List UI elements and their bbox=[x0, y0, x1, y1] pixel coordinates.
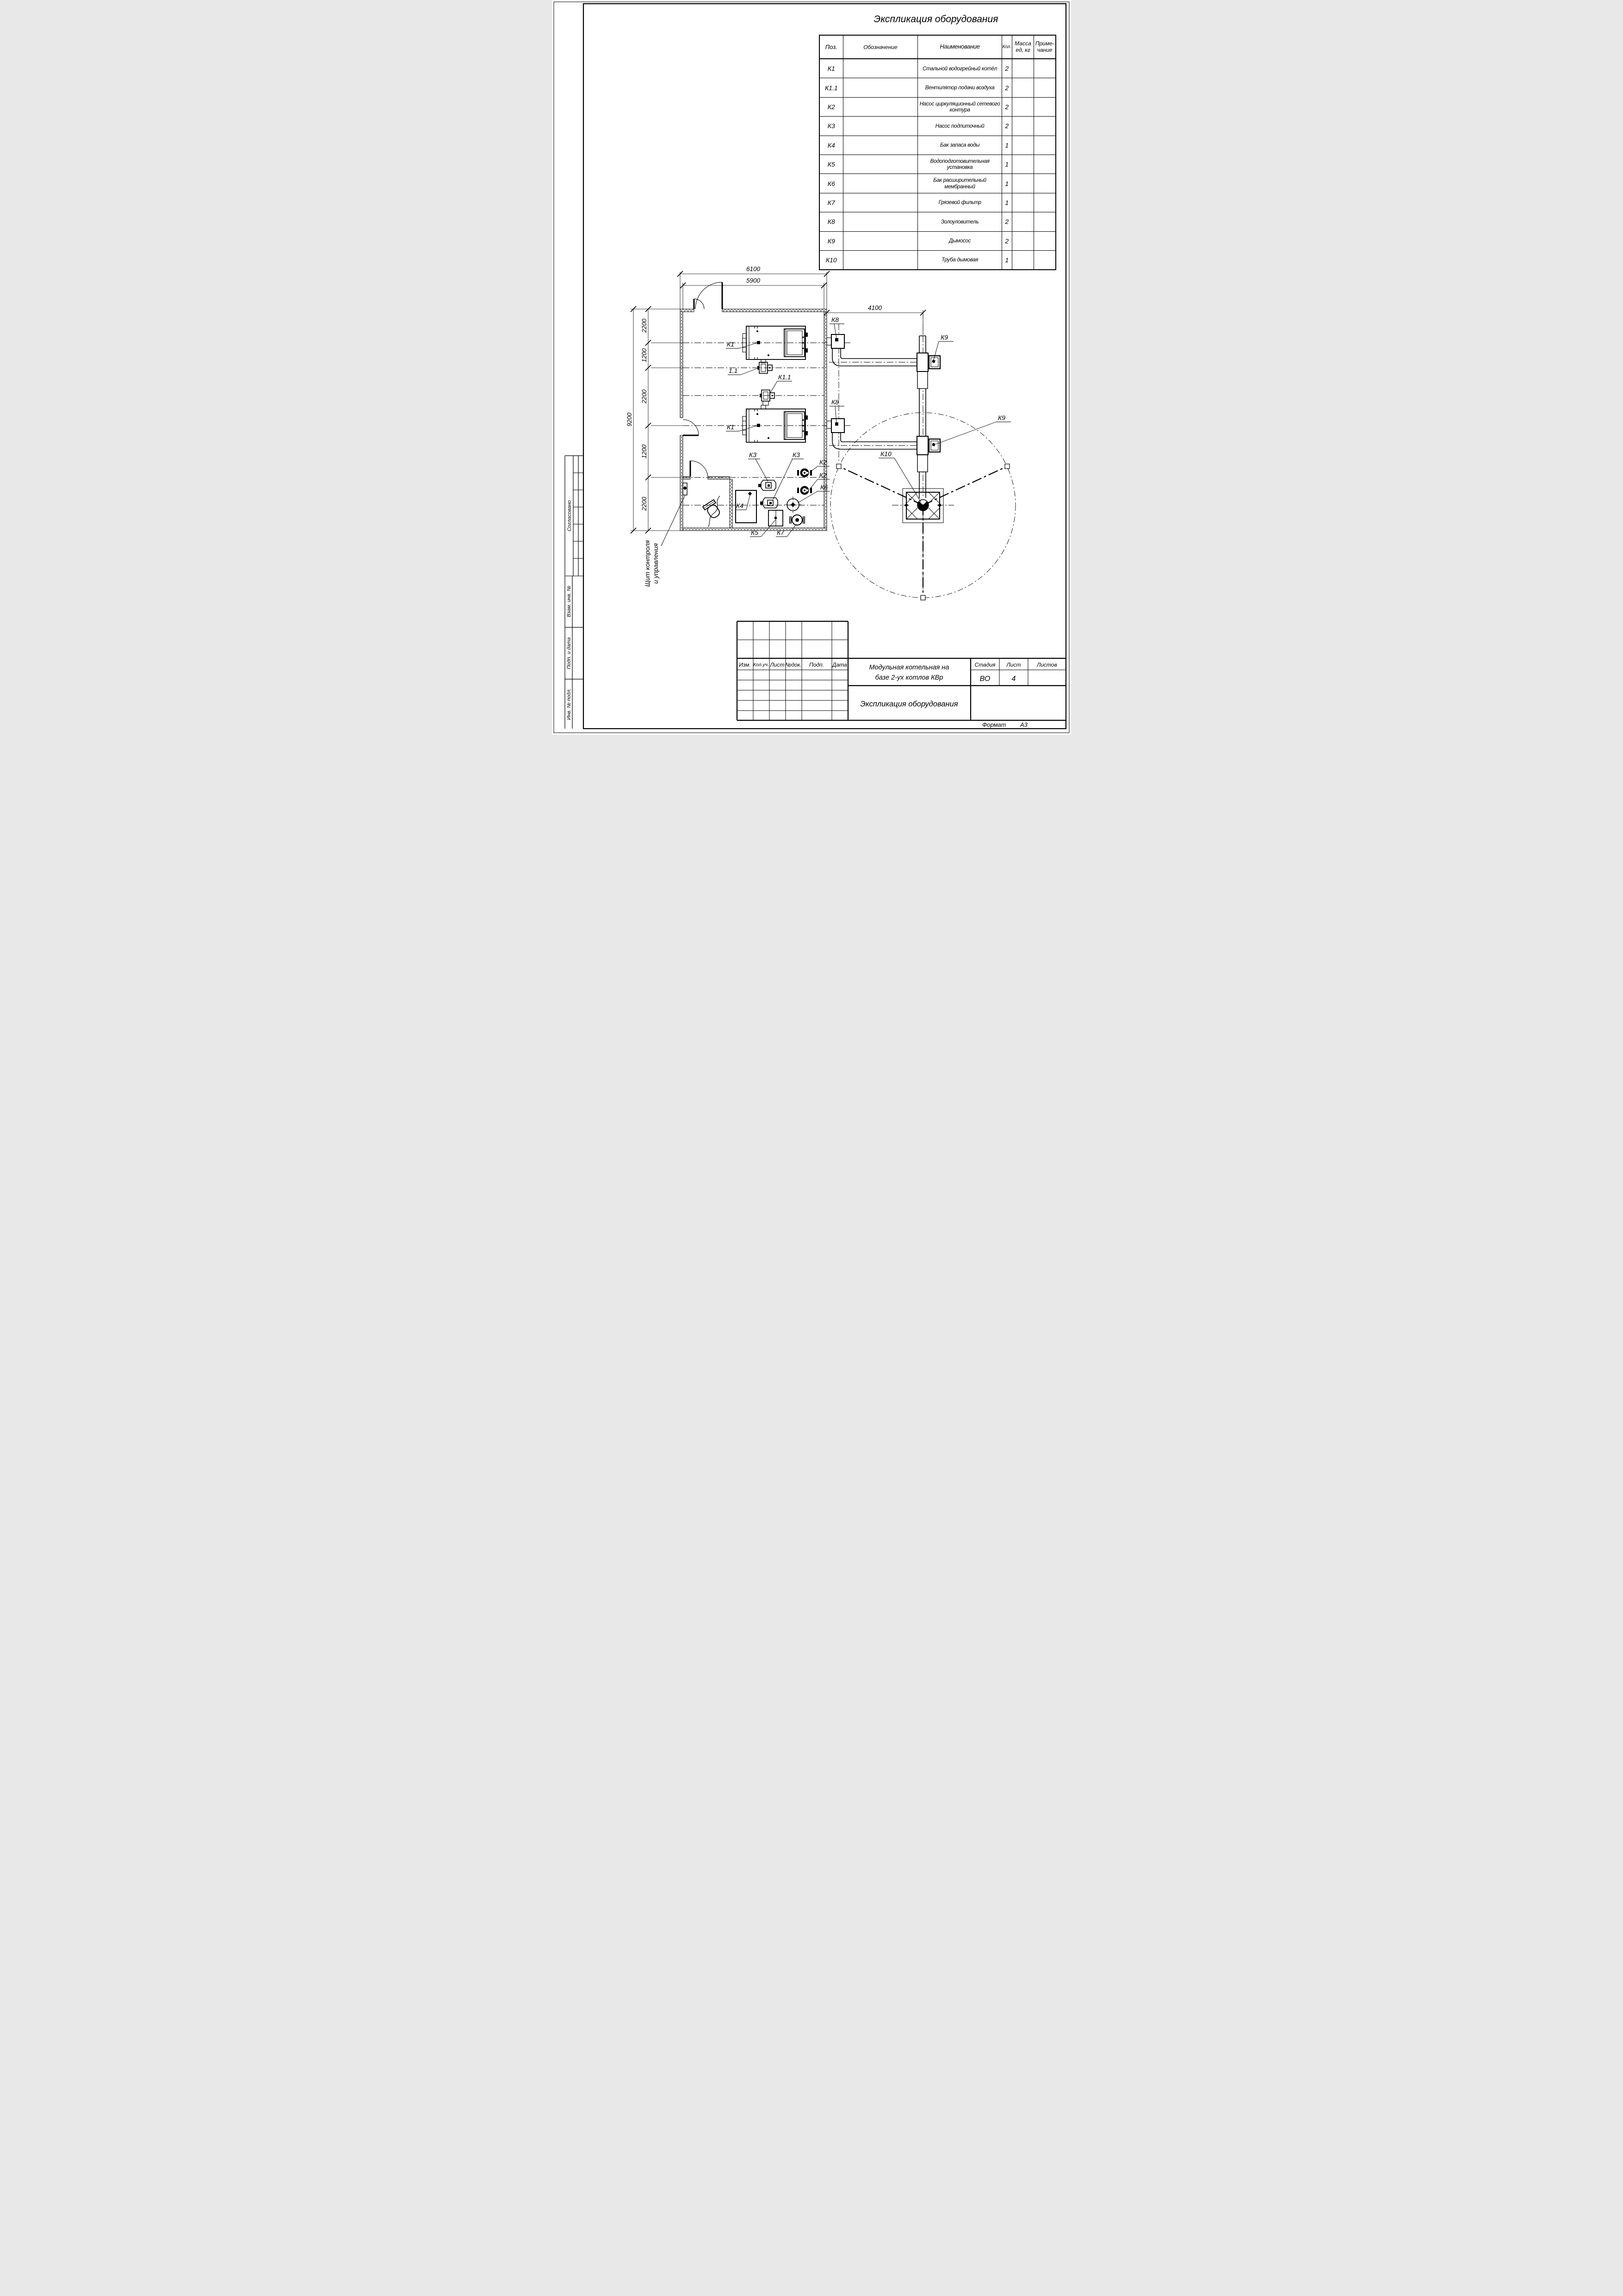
pump-k3-2 bbox=[760, 498, 778, 508]
header-pos: Поз. bbox=[820, 36, 843, 58]
header-mass: Масса ед, кг bbox=[1012, 36, 1034, 58]
label-k1-top: К1 bbox=[727, 340, 734, 348]
tb-stage-value: ВО bbox=[980, 675, 991, 683]
header-mass-line2: ед, кг bbox=[1016, 47, 1030, 53]
row-note bbox=[1034, 212, 1055, 231]
format-label: Формат bbox=[982, 721, 1006, 728]
row-name: Бак расширительный мембранный bbox=[917, 174, 1002, 192]
pump-k3-1 bbox=[758, 480, 776, 490]
table-row: К3 Насос подпиточный 2 bbox=[820, 116, 1055, 135]
row-qty: 1 bbox=[1002, 251, 1012, 269]
tb-col-data: Дата bbox=[831, 662, 847, 668]
row-note bbox=[1034, 117, 1055, 135]
stamp-vzam-label: Взам. инв. № bbox=[566, 586, 572, 617]
k4-marker bbox=[748, 492, 752, 495]
header-note-line1: Приме- bbox=[1035, 41, 1054, 47]
row-note bbox=[1034, 155, 1055, 173]
row-name: Водоподготовительная установка bbox=[917, 155, 1002, 173]
row-mass bbox=[1012, 174, 1034, 192]
row-pos: К1 bbox=[820, 59, 843, 78]
title-block-text: Изм. Кол.уч. Лист №док. Подп. Дата Модул… bbox=[739, 662, 1057, 708]
tb-stage-label: Стадия bbox=[975, 662, 996, 668]
format-value: А3 bbox=[1020, 721, 1028, 728]
tb-object-line2: базе 2-ух котлов КВр bbox=[875, 674, 943, 681]
row-pos: К4 bbox=[820, 136, 843, 155]
ash-collector-k8-bottom bbox=[827, 419, 844, 433]
sheet-title: Экспликация оборудования bbox=[874, 14, 998, 25]
header-note-line2: чание bbox=[1037, 47, 1053, 53]
row-mass bbox=[1012, 155, 1034, 173]
row-note bbox=[1034, 136, 1055, 155]
label-k10: К10 bbox=[880, 450, 892, 458]
stamp-podp-label: Подп. и дата bbox=[566, 637, 572, 669]
door-wc bbox=[690, 461, 708, 477]
row-note bbox=[1034, 232, 1055, 250]
row-mass bbox=[1012, 117, 1034, 135]
dim-seg4: 1200 bbox=[641, 444, 648, 458]
expansion-tank-k6 bbox=[785, 496, 801, 513]
row-designation bbox=[843, 232, 918, 250]
row-designation bbox=[843, 136, 918, 155]
row-qty: 2 bbox=[1002, 78, 1012, 97]
table-row: К10 Труба дымовая 1 bbox=[820, 250, 1055, 269]
header-note: Приме- чание bbox=[1034, 36, 1055, 58]
header-mass-line1: Масса bbox=[1015, 41, 1031, 47]
label-k9-bottom: К9 bbox=[998, 414, 1005, 421]
label-k3-1: К3 bbox=[749, 451, 756, 458]
row-note bbox=[1034, 78, 1055, 97]
centerlines bbox=[683, 313, 954, 594]
row-pos: К9 bbox=[820, 232, 843, 250]
equipment-table: Поз. Обозначение Наименование Кол. Масса… bbox=[819, 35, 1056, 270]
row-pos: К2 bbox=[820, 98, 843, 116]
dim-5900: 5900 bbox=[746, 277, 761, 284]
drawing-sheet: Согласовано Взам. инв. № Подп. и дата Ин… bbox=[552, 0, 1071, 735]
row-designation bbox=[843, 174, 918, 192]
tb-sheets-label: Листов bbox=[1036, 662, 1057, 668]
row-name: Дымосос bbox=[917, 232, 1002, 250]
row-qty: 2 bbox=[1002, 212, 1012, 231]
tb-col-podp: Подп. bbox=[809, 662, 824, 668]
row-note bbox=[1034, 59, 1055, 78]
pump-k2-2 bbox=[797, 486, 812, 495]
row-designation bbox=[843, 98, 918, 116]
row-qty: 1 bbox=[1002, 136, 1012, 155]
label-k2-1: К2 bbox=[819, 458, 827, 466]
tb-col-koluch: Кол.уч. bbox=[753, 662, 769, 668]
dim-6100: 6100 bbox=[746, 266, 761, 272]
ash-collector-k8-top bbox=[827, 334, 844, 348]
table-row: К1.1 Вентилятор подачи воздуха 2 bbox=[820, 78, 1055, 97]
row-pos: К7 bbox=[820, 193, 843, 212]
row-designation bbox=[843, 117, 918, 135]
label-k5: К5 bbox=[751, 529, 758, 536]
tb-col-izm: Изм. bbox=[739, 662, 751, 668]
table-header-row: Поз. Обозначение Наименование Кол. Масса… bbox=[820, 36, 1055, 59]
table-row: К7 Грязевой фильтр 1 bbox=[820, 193, 1055, 212]
tb-doc-name: Экспликация оборудования bbox=[860, 700, 958, 708]
smoke-exhauster-k9-top bbox=[917, 353, 940, 371]
boiler-k1-bottom bbox=[743, 405, 808, 442]
label-k7: К7 bbox=[777, 529, 785, 536]
table-row: К6 Бак расширительный мембранный 1 bbox=[820, 173, 1055, 192]
label-k8-top: К8 bbox=[831, 316, 839, 323]
row-designation bbox=[843, 193, 918, 212]
fan-k11 bbox=[760, 390, 774, 405]
row-mass bbox=[1012, 193, 1034, 212]
row-name: Труба дымовая bbox=[917, 251, 1002, 269]
row-note bbox=[1034, 193, 1055, 212]
table-row: К2 Насос циркуляционный сетевого контура… bbox=[820, 97, 1055, 116]
label-fan-11: 1.1 bbox=[729, 367, 737, 374]
row-pos: К1.1 bbox=[820, 78, 843, 97]
row-pos: К10 bbox=[820, 251, 843, 269]
tb-sheet-label: Лист bbox=[1006, 662, 1021, 668]
toilet bbox=[703, 500, 722, 520]
row-mass bbox=[1012, 98, 1034, 116]
row-qty: 1 bbox=[1002, 174, 1012, 192]
row-name: Бак запаса воды bbox=[917, 136, 1002, 155]
row-pos: К5 bbox=[820, 155, 843, 173]
label-k3-2: К3 bbox=[793, 451, 800, 458]
row-name: Грязевой фильтр bbox=[917, 193, 1002, 212]
row-designation bbox=[843, 251, 918, 269]
label-k8-bottom: К8 bbox=[831, 398, 839, 406]
header-designation: Обозначение bbox=[843, 36, 918, 58]
table-row: К1 Стальной водогрейный котёл 2 bbox=[820, 59, 1055, 78]
row-mass bbox=[1012, 136, 1034, 155]
dim-4100: 4100 bbox=[868, 304, 882, 311]
row-designation bbox=[843, 78, 918, 97]
row-qty: 2 bbox=[1002, 117, 1012, 135]
row-name: Насос подпиточный bbox=[917, 117, 1002, 135]
table-row: К8 Золоуловитель 2 bbox=[820, 212, 1055, 231]
row-note bbox=[1034, 251, 1055, 269]
dim-seg2: 1200 bbox=[641, 348, 648, 362]
row-designation bbox=[843, 212, 918, 231]
dim-seg5: 2200 bbox=[641, 496, 648, 511]
filter-k7 bbox=[790, 515, 805, 525]
leader-lines bbox=[661, 324, 1011, 546]
flue-duct-bottom bbox=[832, 433, 919, 449]
row-qty: 2 bbox=[1002, 59, 1012, 78]
row-name: Насос циркуляционный сетевого контура bbox=[917, 98, 1002, 116]
row-name: Стальной водогрейный котёл bbox=[917, 59, 1002, 78]
label-k2-2: К2 bbox=[819, 471, 827, 479]
row-qty: 1 bbox=[1002, 155, 1012, 173]
row-name: Золоуловитель bbox=[917, 212, 1002, 231]
row-name: Вентилятор подачи воздуха bbox=[917, 78, 1002, 97]
label-k9-top: К9 bbox=[941, 334, 948, 341]
row-mass bbox=[1012, 212, 1034, 231]
row-pos: К8 bbox=[820, 212, 843, 231]
stamp-inv-label: Инв. № подл. bbox=[566, 688, 572, 720]
pump-k2-1 bbox=[797, 469, 812, 477]
door-main-double bbox=[694, 282, 722, 309]
row-qty: 2 bbox=[1002, 232, 1012, 250]
header-qty: Кол. bbox=[1002, 36, 1012, 58]
tb-col-ndok: №док. bbox=[785, 662, 801, 668]
label-k1-bottom: К1 bbox=[727, 423, 734, 431]
tb-object-line1: Модульная котельная на bbox=[869, 664, 949, 671]
control-panel bbox=[683, 483, 687, 495]
water-treatment-k5 bbox=[768, 510, 783, 526]
door-left-wall bbox=[683, 420, 699, 435]
row-mass bbox=[1012, 59, 1034, 78]
table-row: К4 Бак запаса воды 1 bbox=[820, 136, 1055, 155]
table-row: К9 Дымосос 2 bbox=[820, 231, 1055, 250]
label-k6: К6 bbox=[820, 483, 828, 491]
dim-9200: 9200 bbox=[626, 412, 633, 427]
row-qty: 2 bbox=[1002, 98, 1012, 116]
dim-seg1: 2200 bbox=[641, 318, 648, 333]
row-mass bbox=[1012, 78, 1034, 97]
stamp-agreed-label: Согласовано bbox=[567, 500, 572, 531]
tb-sheet-value: 4 bbox=[1012, 675, 1016, 683]
header-name: Наименование bbox=[917, 36, 1002, 58]
label-panel-line1: Щит контроля bbox=[644, 540, 651, 587]
label-panel-line2: и управления bbox=[652, 543, 659, 584]
dim-seg3: 2200 bbox=[641, 389, 648, 404]
guy-wires bbox=[839, 466, 1007, 598]
row-qty: 1 bbox=[1002, 193, 1012, 212]
smoke-exhauster-k9-bottom bbox=[917, 436, 940, 455]
row-designation bbox=[843, 59, 918, 78]
flue-duct-top bbox=[832, 348, 919, 366]
row-pos: К6 bbox=[820, 174, 843, 192]
row-pos: К3 bbox=[820, 117, 843, 135]
tb-col-list: Лист bbox=[770, 662, 785, 668]
label-k4: К4 bbox=[736, 502, 743, 509]
row-note bbox=[1034, 174, 1055, 192]
row-designation bbox=[843, 155, 918, 173]
row-mass bbox=[1012, 251, 1034, 269]
table-row: К5 Водоподготовительная установка 1 bbox=[820, 155, 1055, 173]
row-note bbox=[1034, 98, 1055, 116]
row-mass bbox=[1012, 232, 1034, 250]
label-k11: К1.1 bbox=[778, 373, 791, 381]
